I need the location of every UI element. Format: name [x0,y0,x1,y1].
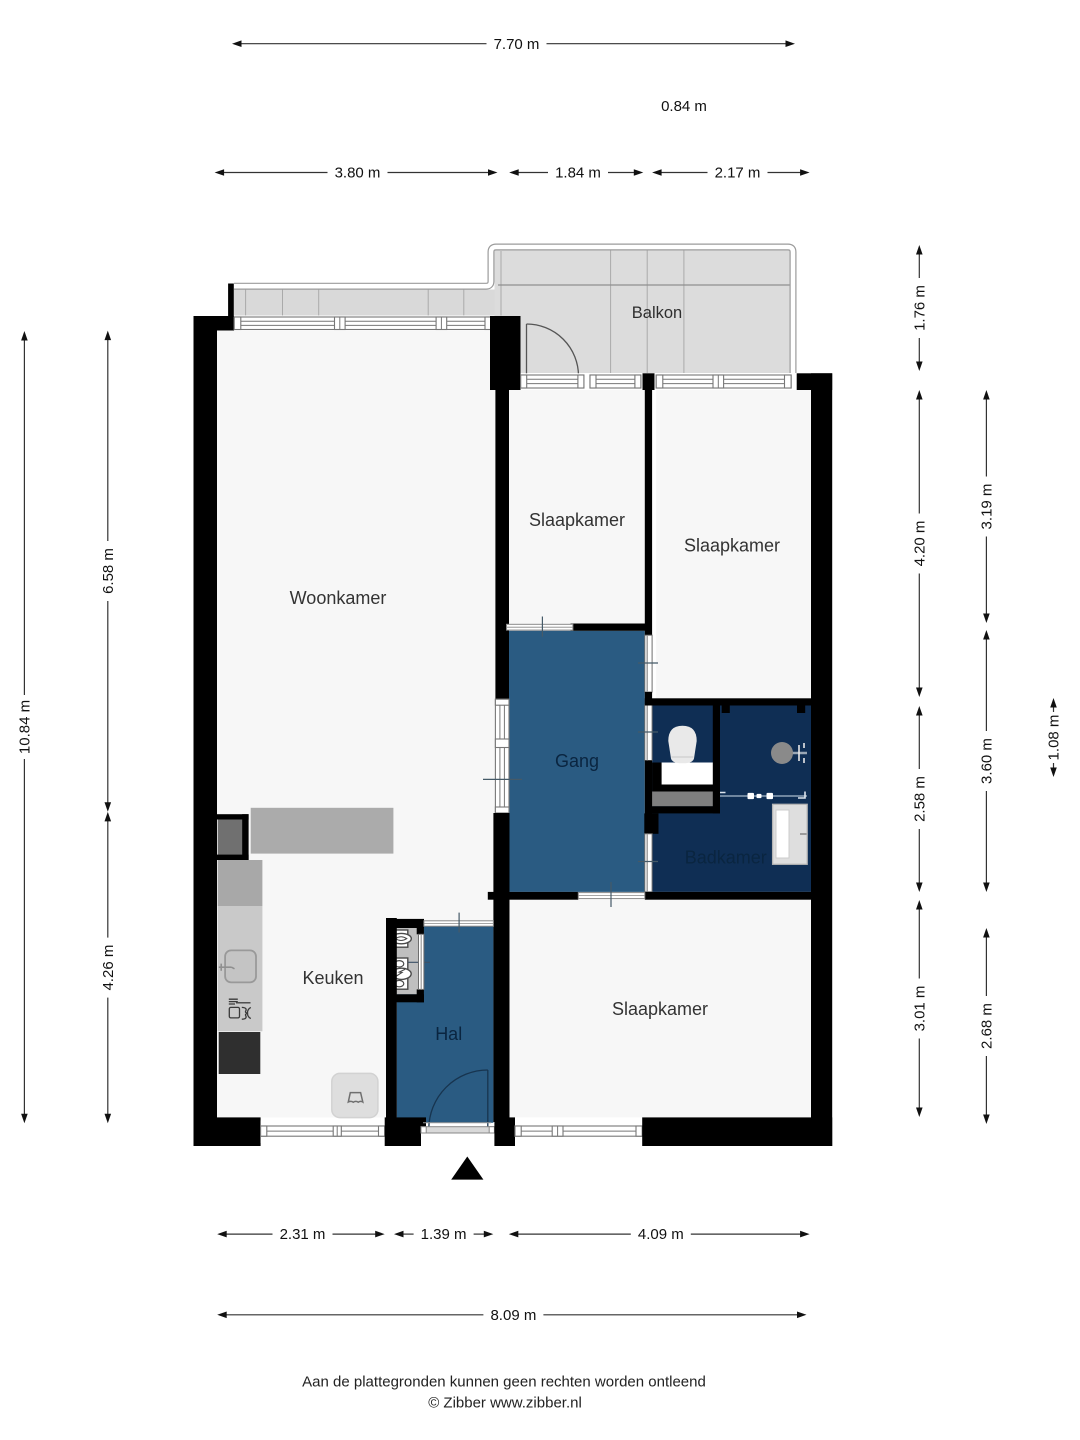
svg-text:10.84 m: 10.84 m [17,700,34,754]
svg-text:Slaapkamer: Slaapkamer [684,536,780,556]
svg-text:Balkon: Balkon [632,304,682,322]
svg-text:Slaapkamer: Slaapkamer [529,510,625,530]
svg-text:3.19 m: 3.19 m [979,484,996,530]
svg-text:1.39 m: 1.39 m [421,1226,467,1243]
svg-text:Slaapkamer: Slaapkamer [612,999,708,1019]
svg-text:2.31 m: 2.31 m [280,1226,326,1243]
svg-text:4.09 m: 4.09 m [638,1226,684,1243]
svg-text:1.84 m: 1.84 m [555,165,601,182]
svg-text:4.26 m: 4.26 m [100,945,117,991]
svg-text:1.76 m: 1.76 m [911,285,928,331]
svg-text:Badkamer: Badkamer [685,848,767,868]
svg-text:Gang: Gang [555,751,599,771]
svg-text:Woonkamer: Woonkamer [290,588,387,608]
svg-text:3.01 m: 3.01 m [911,986,928,1032]
svg-text:Aan de plattegronden kunnen ge: Aan de plattegronden kunnen geen rechten… [302,1374,706,1391]
svg-text:8.09 m: 8.09 m [490,1307,536,1324]
svg-text:2.68 m: 2.68 m [979,1003,996,1049]
svg-text:© Zibber www.zibber.nl: © Zibber www.zibber.nl [428,1395,582,1412]
svg-text:3.60 m: 3.60 m [979,738,996,784]
svg-text:7.70 m: 7.70 m [494,36,540,53]
svg-text:0.84 m: 0.84 m [661,98,707,115]
svg-text:2.17 m: 2.17 m [715,165,761,182]
svg-text:3.80 m: 3.80 m [335,165,381,182]
svg-text:4.20 m: 4.20 m [911,521,928,567]
svg-text:2.58 m: 2.58 m [911,776,928,822]
svg-text:6.58 m: 6.58 m [100,548,117,594]
svg-text:Keuken: Keuken [302,968,363,988]
svg-text:Hal: Hal [435,1024,462,1044]
svg-text:1.08 m: 1.08 m [1046,715,1063,761]
